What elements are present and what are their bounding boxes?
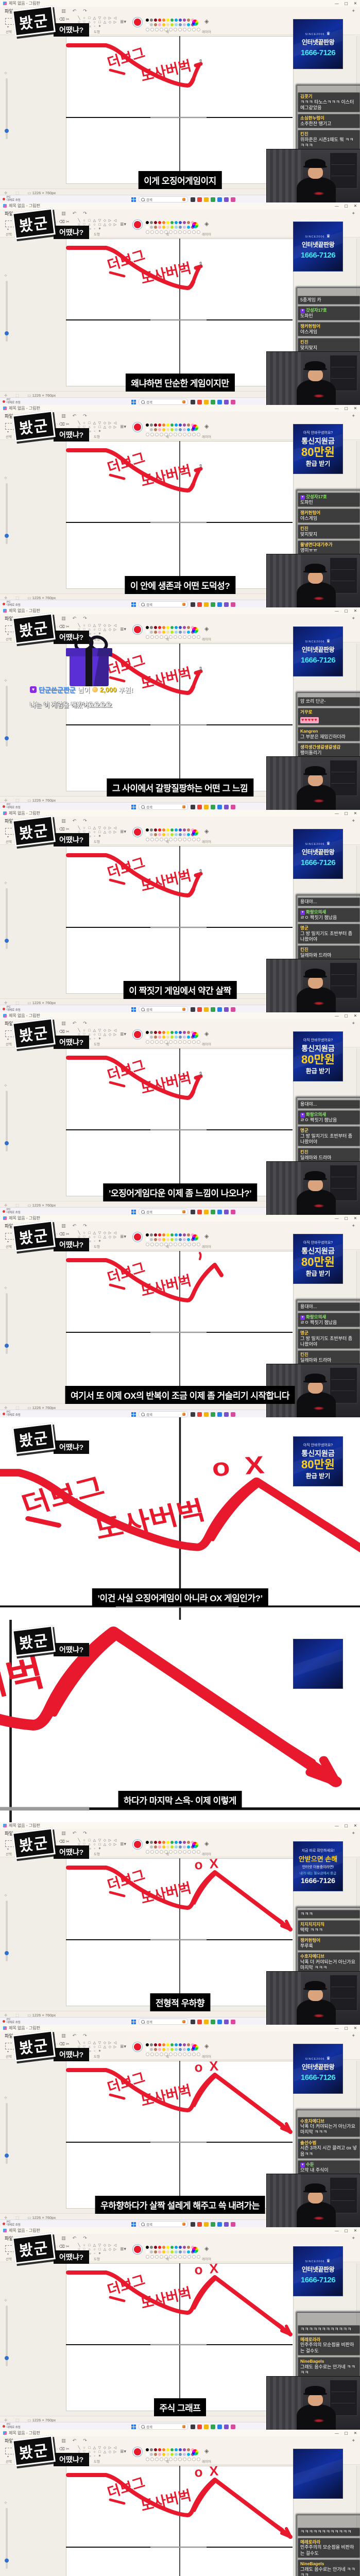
taskbar-search-box[interactable]: 검색: [139, 196, 188, 202]
shape-icon[interactable]: ╲: [77, 219, 81, 223]
color-swatch[interactable]: [166, 631, 169, 634]
shape-icon[interactable]: ◁: [113, 1839, 117, 1843]
shape-icon[interactable]: ✶: [98, 1037, 101, 1041]
minimize-button[interactable]: —: [335, 608, 339, 613]
color-swatch[interactable]: [187, 2246, 190, 2249]
color-swatch[interactable]: [162, 1238, 165, 1241]
taskbar-icon-store[interactable]: [231, 805, 235, 809]
undo-icon[interactable]: ↶: [73, 616, 77, 621]
color-swatch[interactable]: [179, 1233, 182, 1236]
shape-icon[interactable]: ▽: [98, 1839, 101, 1843]
shape-icon[interactable]: ▷: [113, 2248, 117, 2252]
shape-icon[interactable]: ✶: [98, 227, 101, 231]
color-swatch-empty[interactable]: [192, 1243, 196, 1246]
taskbar-icon-explorer[interactable]: [204, 805, 209, 809]
color-swatch[interactable]: [183, 226, 186, 229]
color-swatch[interactable]: [146, 2246, 149, 2249]
color-swatch[interactable]: [170, 828, 174, 832]
shape-icon[interactable]: ▷: [108, 624, 112, 628]
shape-icon[interactable]: □: [88, 16, 91, 21]
taskbar-icon-paint[interactable]: [224, 1007, 229, 1012]
shape-icon[interactable]: ○: [82, 16, 86, 21]
shape-icon[interactable]: △: [93, 624, 96, 628]
color-swatch[interactable]: [150, 2250, 153, 2253]
color-swatch-empty[interactable]: [192, 433, 196, 436]
shape-icon[interactable]: ✶: [98, 25, 101, 29]
color-swatch-empty[interactable]: [197, 838, 200, 841]
color-swatch[interactable]: [150, 1845, 153, 1849]
shape-icon[interactable]: □: [88, 2244, 91, 2248]
taskbar-icon-photos[interactable]: [217, 805, 222, 809]
taskbar-icon-photos[interactable]: [217, 197, 222, 202]
shape-icon[interactable]: △: [103, 831, 107, 835]
taskbar-weather-widget[interactable]: PC대체로 흐림: [3, 1411, 21, 1417]
color-swatch-empty[interactable]: [169, 1243, 173, 1246]
close-button[interactable]: ✕: [354, 2026, 357, 2030]
color-swatch[interactable]: [187, 2043, 190, 2046]
color-swatch[interactable]: [187, 1233, 190, 1236]
shape-icon[interactable]: △: [93, 2446, 96, 2450]
copilot-icon[interactable]: ✦: [351, 2438, 355, 2444]
color-swatch-empty[interactable]: [155, 2053, 159, 2056]
shape-icon[interactable]: ✶: [98, 1240, 101, 1244]
color-swatch[interactable]: [187, 631, 190, 634]
color-swatch[interactable]: [146, 631, 149, 634]
shape-icon[interactable]: ▷: [108, 1839, 112, 1843]
shape-icon[interactable]: ○: [93, 831, 96, 835]
shape-icon[interactable]: ▷: [113, 223, 117, 227]
undo-icon[interactable]: ↶: [73, 1223, 77, 1229]
color-swatch[interactable]: [146, 2043, 149, 2046]
redo-icon[interactable]: ↷: [83, 818, 87, 824]
color-swatch[interactable]: [166, 2453, 169, 2456]
taskbar-icon-chrome[interactable]: [197, 1412, 202, 1417]
color-swatch[interactable]: [166, 2250, 169, 2253]
color-swatch[interactable]: [166, 19, 169, 22]
shape-icon[interactable]: ◁: [113, 2041, 117, 2045]
color-swatch[interactable]: [183, 1233, 186, 1236]
color-swatch[interactable]: [170, 423, 174, 427]
selected-color-swatch[interactable]: [134, 423, 141, 431]
color-swatch-empty[interactable]: [155, 635, 159, 639]
color-swatch-empty[interactable]: [192, 2458, 196, 2461]
color-swatch[interactable]: [146, 2448, 149, 2451]
taskbar-icon-store[interactable]: [231, 1412, 235, 1417]
shape-icon[interactable]: □: [98, 831, 101, 835]
color-swatch[interactable]: [187, 1845, 190, 1849]
color-swatch[interactable]: [158, 2250, 161, 2253]
close-button[interactable]: ✕: [354, 1216, 357, 1221]
close-button[interactable]: ✕: [354, 1, 357, 6]
shape-icon[interactable]: □: [98, 2248, 101, 2252]
windows-start-button[interactable]: [131, 2222, 136, 2227]
taskbar-icon-excel[interactable]: [211, 805, 215, 809]
color-swatch[interactable]: [187, 833, 190, 836]
color-swatch[interactable]: [146, 19, 149, 22]
color-swatch[interactable]: [175, 1031, 178, 1034]
color-swatch[interactable]: [166, 1031, 169, 1034]
zoom-slider-thumb[interactable]: [5, 2356, 9, 2360]
color-swatch-empty[interactable]: [155, 1040, 159, 1044]
color-swatch[interactable]: [170, 2453, 174, 2456]
color-swatch[interactable]: [183, 2453, 186, 2456]
shape-icon[interactable]: □: [88, 826, 91, 831]
taskbar-icon-task-view[interactable]: [191, 1412, 195, 1417]
color-swatch[interactable]: [150, 626, 153, 629]
color-swatch[interactable]: [170, 2246, 174, 2249]
shape-icon[interactable]: □: [88, 2446, 91, 2450]
taskbar-icon-photos[interactable]: [217, 2020, 222, 2024]
taskbar-icon-store[interactable]: [231, 2020, 235, 2024]
shape-icon[interactable]: ◇: [108, 426, 112, 430]
shape-icon[interactable]: ▽: [98, 16, 101, 21]
color-swatch[interactable]: [162, 631, 165, 634]
shape-icon[interactable]: ○: [82, 1839, 86, 1843]
shape-icon[interactable]: ◦: [93, 1240, 96, 1244]
color-swatch[interactable]: [146, 221, 149, 224]
color-swatch[interactable]: [187, 2453, 190, 2456]
zoom-slider[interactable]: [6, 1901, 8, 1961]
shape-icon[interactable]: ◇: [103, 2446, 107, 2450]
windows-start-button[interactable]: [131, 197, 136, 202]
color-swatch[interactable]: [154, 2246, 157, 2249]
color-swatch[interactable]: [166, 428, 169, 431]
redo-icon[interactable]: ↷: [83, 2033, 87, 2039]
redo-icon[interactable]: ↷: [83, 211, 87, 216]
zoom-slider-thumb[interactable]: [5, 2154, 9, 2158]
color-swatch[interactable]: [183, 2448, 186, 2451]
color-swatch[interactable]: [175, 2043, 178, 2046]
color-swatch[interactable]: [166, 1841, 169, 1844]
color-swatch-empty[interactable]: [160, 433, 163, 436]
taskbar-icon-task-view[interactable]: [191, 2425, 195, 2429]
shape-icon[interactable]: ◇: [108, 831, 112, 835]
redo-icon[interactable]: ↷: [83, 1223, 87, 1229]
color-swatch[interactable]: [179, 1036, 182, 1039]
shape-icon[interactable]: ○: [93, 1235, 96, 1240]
color-swatch[interactable]: [183, 1845, 186, 1849]
copilot-icon[interactable]: ✦: [351, 1831, 355, 1836]
color-swatch[interactable]: [187, 19, 190, 22]
selected-color-swatch[interactable]: [134, 2448, 141, 2455]
color-swatch[interactable]: [158, 23, 161, 26]
shape-icon[interactable]: ◇: [103, 624, 107, 628]
undo-icon[interactable]: ↶: [73, 818, 77, 824]
shape-icon[interactable]: △: [93, 1231, 96, 1235]
color-swatch[interactable]: [179, 833, 182, 836]
close-button[interactable]: ✕: [354, 204, 357, 208]
color-swatch-empty[interactable]: [160, 1040, 163, 1044]
color-swatch[interactable]: [150, 423, 153, 427]
color-swatch[interactable]: [175, 1036, 178, 1039]
layers-icon[interactable]: ◈: [204, 1030, 209, 1037]
color-swatch[interactable]: [162, 1036, 165, 1039]
taskbar-search-box[interactable]: 검색: [139, 601, 188, 607]
color-swatch-empty[interactable]: [169, 2255, 173, 2259]
color-swatch[interactable]: [162, 428, 165, 431]
shape-icon[interactable]: □: [88, 1029, 91, 1033]
shape-icon[interactable]: ◁: [113, 624, 117, 628]
shape-icon[interactable]: ╲: [77, 2244, 81, 2248]
zoom-slider[interactable]: [6, 2508, 8, 2569]
color-swatch-empty[interactable]: [192, 1850, 196, 1854]
undo-icon[interactable]: ↶: [73, 8, 77, 14]
color-wheel-icon[interactable]: [192, 425, 198, 431]
color-swatch[interactable]: [170, 1036, 174, 1039]
zoom-slider[interactable]: [6, 888, 8, 949]
color-swatch[interactable]: [158, 423, 161, 427]
color-swatch[interactable]: [166, 1233, 169, 1236]
taskbar-icon-chrome[interactable]: [197, 602, 202, 607]
taskbar-icon-store[interactable]: [231, 1210, 235, 1214]
taskbar-icon-explorer[interactable]: [204, 2222, 209, 2227]
close-button[interactable]: ✕: [354, 406, 357, 411]
color-swatch[interactable]: [158, 626, 161, 629]
color-swatch[interactable]: [175, 828, 178, 832]
shape-icon[interactable]: ○: [93, 21, 96, 25]
minimize-button[interactable]: —: [335, 1013, 339, 1018]
color-swatch-empty[interactable]: [197, 1040, 200, 1044]
color-swatch-empty[interactable]: [155, 433, 159, 436]
color-wheel-icon[interactable]: [192, 1842, 198, 1848]
taskbar-icon-paint[interactable]: [224, 197, 229, 202]
color-swatch[interactable]: [170, 2048, 174, 2051]
shape-icon[interactable]: ▷: [108, 421, 112, 426]
shape-icon[interactable]: ○: [93, 628, 96, 632]
shape-icon[interactable]: ○: [82, 1231, 86, 1235]
shape-icon[interactable]: △: [93, 1839, 96, 1843]
taskbar-icon-paint[interactable]: [224, 805, 229, 809]
minimize-button[interactable]: —: [335, 2026, 339, 2030]
color-swatch[interactable]: [150, 828, 153, 832]
color-swatch[interactable]: [187, 2448, 190, 2451]
zoom-slider[interactable]: [6, 281, 8, 342]
line-width-icon[interactable]: ≣▾: [120, 1841, 126, 1847]
shape-icon[interactable]: ▷: [108, 2244, 112, 2248]
color-swatch-empty[interactable]: [187, 635, 191, 639]
color-swatch-empty[interactable]: [187, 1040, 191, 1044]
shape-icon[interactable]: ╲: [77, 1839, 81, 1843]
color-swatch-empty[interactable]: [174, 635, 177, 639]
color-swatch-empty[interactable]: [146, 1040, 149, 1044]
color-swatch[interactable]: [146, 423, 149, 427]
color-swatch-empty[interactable]: [169, 2458, 173, 2461]
zoom-slider[interactable]: [6, 2306, 8, 2366]
selection-caret-icon[interactable]: ▾: [7, 633, 9, 636]
color-swatch[interactable]: [179, 2048, 182, 2051]
color-swatch-empty[interactable]: [178, 635, 182, 639]
shape-icon[interactable]: □: [98, 1843, 101, 1847]
color-swatch[interactable]: [187, 423, 190, 427]
color-swatch-empty[interactable]: [178, 433, 182, 436]
taskbar-icon-paint[interactable]: [224, 1210, 229, 1214]
shape-icon[interactable]: ▷: [113, 831, 117, 835]
color-swatch-empty[interactable]: [160, 635, 163, 639]
color-swatch[interactable]: [175, 1841, 178, 1844]
maximize-button[interactable]: ▢: [345, 2026, 348, 2030]
color-swatch-empty[interactable]: [169, 1040, 173, 1044]
shape-icon[interactable]: ○: [82, 1029, 86, 1033]
selected-color-swatch[interactable]: [134, 2246, 141, 2253]
taskbar-icon-explorer[interactable]: [204, 1210, 209, 1214]
shape-icon[interactable]: ○: [93, 1843, 96, 1847]
color-swatch[interactable]: [154, 221, 157, 224]
print-icon[interactable]: ▥: [61, 211, 66, 216]
taskbar-icon-photos[interactable]: [217, 2222, 222, 2227]
color-swatch-empty[interactable]: [187, 2458, 191, 2461]
minimize-button[interactable]: —: [335, 204, 339, 208]
color-swatch-empty[interactable]: [150, 1243, 154, 1246]
color-swatch-empty[interactable]: [146, 635, 149, 639]
color-swatch-empty[interactable]: [150, 433, 154, 436]
color-swatch-empty[interactable]: [169, 28, 173, 31]
line-width-icon[interactable]: ≣▾: [120, 2044, 126, 2049]
color-swatch-empty[interactable]: [155, 2458, 159, 2461]
taskbar-icon-explorer[interactable]: [204, 2020, 209, 2024]
color-swatch[interactable]: [166, 2048, 169, 2051]
color-swatch-empty[interactable]: [187, 838, 191, 841]
color-swatch[interactable]: [154, 226, 157, 229]
color-swatch[interactable]: [154, 828, 157, 832]
shape-icon[interactable]: ◁: [113, 2244, 117, 2248]
zoom-slider-thumb[interactable]: [5, 1141, 9, 1145]
shape-icon[interactable]: ▷: [113, 2045, 117, 2049]
color-swatch[interactable]: [187, 221, 190, 224]
zoom-slider-thumb[interactable]: [5, 939, 9, 943]
color-swatch[interactable]: [179, 1238, 182, 1241]
shape-icon[interactable]: ○: [93, 2045, 96, 2049]
color-swatch[interactable]: [162, 1841, 165, 1844]
shape-icon[interactable]: △: [93, 219, 96, 223]
color-swatch[interactable]: [170, 2250, 174, 2253]
print-icon[interactable]: ▥: [61, 2235, 66, 2241]
line-width-icon[interactable]: ≣▾: [120, 1031, 126, 1037]
color-swatch-empty[interactable]: [183, 2255, 186, 2259]
undo-icon[interactable]: ↶: [73, 2235, 77, 2241]
color-swatch[interactable]: [170, 631, 174, 634]
taskbar-weather-widget[interactable]: PC대체로 흐림: [3, 398, 21, 404]
color-swatch[interactable]: [158, 1031, 161, 1034]
color-swatch-empty[interactable]: [178, 1040, 182, 1044]
shape-icon[interactable]: ▽: [98, 421, 101, 426]
color-swatch[interactable]: [158, 2448, 161, 2451]
shape-icon[interactable]: ╲: [77, 2446, 81, 2450]
taskbar-weather-widget[interactable]: PC대체로 흐림: [3, 601, 21, 607]
color-swatch[interactable]: [183, 833, 186, 836]
color-swatch-empty[interactable]: [174, 2255, 177, 2259]
shape-icon[interactable]: ◇: [108, 2045, 112, 2049]
color-swatch[interactable]: [154, 1238, 157, 1241]
shape-icon[interactable]: ◁: [113, 826, 117, 831]
maximize-button[interactable]: ▢: [345, 406, 348, 411]
color-swatch[interactable]: [183, 1841, 186, 1844]
color-swatch[interactable]: [150, 1841, 153, 1844]
color-swatch-empty[interactable]: [155, 2255, 159, 2259]
taskbar-icon-photos[interactable]: [217, 1210, 222, 1214]
color-swatch[interactable]: [170, 1238, 174, 1241]
taskbar-icon-paint[interactable]: [224, 602, 229, 607]
layers-icon[interactable]: ◈: [204, 423, 209, 430]
color-swatch[interactable]: [154, 1233, 157, 1236]
copilot-icon[interactable]: ✦: [351, 1021, 355, 1026]
taskbar-icon-explorer[interactable]: [204, 400, 209, 404]
shape-icon[interactable]: ◇: [103, 421, 107, 426]
color-swatch[interactable]: [162, 2448, 165, 2451]
taskbar-search-box[interactable]: 검색: [139, 2019, 188, 2025]
color-swatch-empty[interactable]: [178, 2255, 182, 2259]
shape-icon[interactable]: ◇: [108, 223, 112, 227]
color-swatch-empty[interactable]: [160, 2053, 163, 2056]
color-swatch[interactable]: [175, 2250, 178, 2253]
color-swatch[interactable]: [158, 833, 161, 836]
maximize-button[interactable]: ▢: [345, 811, 348, 816]
color-swatch[interactable]: [175, 226, 178, 229]
color-swatch[interactable]: [179, 626, 182, 629]
shape-icon[interactable]: ◇: [103, 2041, 107, 2045]
zoom-slider-thumb[interactable]: [5, 1951, 9, 1955]
color-swatch[interactable]: [170, 1845, 174, 1849]
shape-icon[interactable]: △: [103, 2248, 107, 2252]
color-swatch-empty[interactable]: [174, 433, 177, 436]
taskbar-icon-excel[interactable]: [211, 1210, 215, 1214]
taskbar-icon-chrome[interactable]: [197, 1210, 202, 1214]
color-swatch-empty[interactable]: [183, 2458, 186, 2461]
shape-icon[interactable]: ○: [82, 2446, 86, 2450]
shape-icon[interactable]: ◁: [113, 2446, 117, 2450]
color-swatch[interactable]: [146, 1845, 149, 1849]
zoom-slider-thumb[interactable]: [5, 129, 9, 133]
color-swatch[interactable]: [154, 2043, 157, 2046]
shape-icon[interactable]: ▷: [113, 2450, 117, 2454]
color-swatch[interactable]: [183, 626, 186, 629]
taskbar-icon-excel[interactable]: [211, 602, 215, 607]
maximize-button[interactable]: ▢: [345, 1013, 348, 1018]
color-swatch-empty[interactable]: [155, 1850, 159, 1854]
color-swatch-empty[interactable]: [187, 230, 191, 234]
color-swatch[interactable]: [150, 2453, 153, 2456]
color-swatch[interactable]: [175, 1238, 178, 1241]
color-swatch-empty[interactable]: [146, 2458, 149, 2461]
taskbar-icon-chrome[interactable]: [197, 805, 202, 809]
shape-icon[interactable]: △: [93, 2041, 96, 2045]
color-wheel-icon[interactable]: [192, 1234, 198, 1241]
color-swatch[interactable]: [150, 833, 153, 836]
shape-icon[interactable]: △: [103, 628, 107, 632]
shape-icon[interactable]: ╲: [77, 1029, 81, 1033]
shape-icon[interactable]: ◇: [108, 21, 112, 25]
color-swatch-empty[interactable]: [150, 28, 154, 31]
color-swatch[interactable]: [150, 19, 153, 22]
taskbar-icon-photos[interactable]: [217, 2425, 222, 2429]
color-swatch[interactable]: [175, 23, 178, 26]
shape-icon[interactable]: ▷: [113, 426, 117, 430]
color-swatch-empty[interactable]: [183, 1850, 186, 1854]
selection-caret-icon[interactable]: ▾: [7, 835, 9, 839]
color-swatch-empty[interactable]: [174, 230, 177, 234]
taskbar-icon-chrome[interactable]: [197, 2222, 202, 2227]
color-swatch[interactable]: [183, 2246, 186, 2249]
color-swatch[interactable]: [158, 2043, 161, 2046]
shape-icon[interactable]: ✶: [98, 2454, 101, 2459]
color-swatch[interactable]: [179, 2453, 182, 2456]
taskbar-icon-paint[interactable]: [224, 400, 229, 404]
shape-icon[interactable]: ▷: [113, 628, 117, 632]
color-swatch-empty[interactable]: [169, 433, 173, 436]
undo-icon[interactable]: ↶: [73, 211, 77, 216]
taskbar-icon-task-view[interactable]: [191, 197, 195, 202]
selected-color-swatch[interactable]: [134, 1841, 141, 1848]
color-swatch[interactable]: [162, 2246, 165, 2249]
